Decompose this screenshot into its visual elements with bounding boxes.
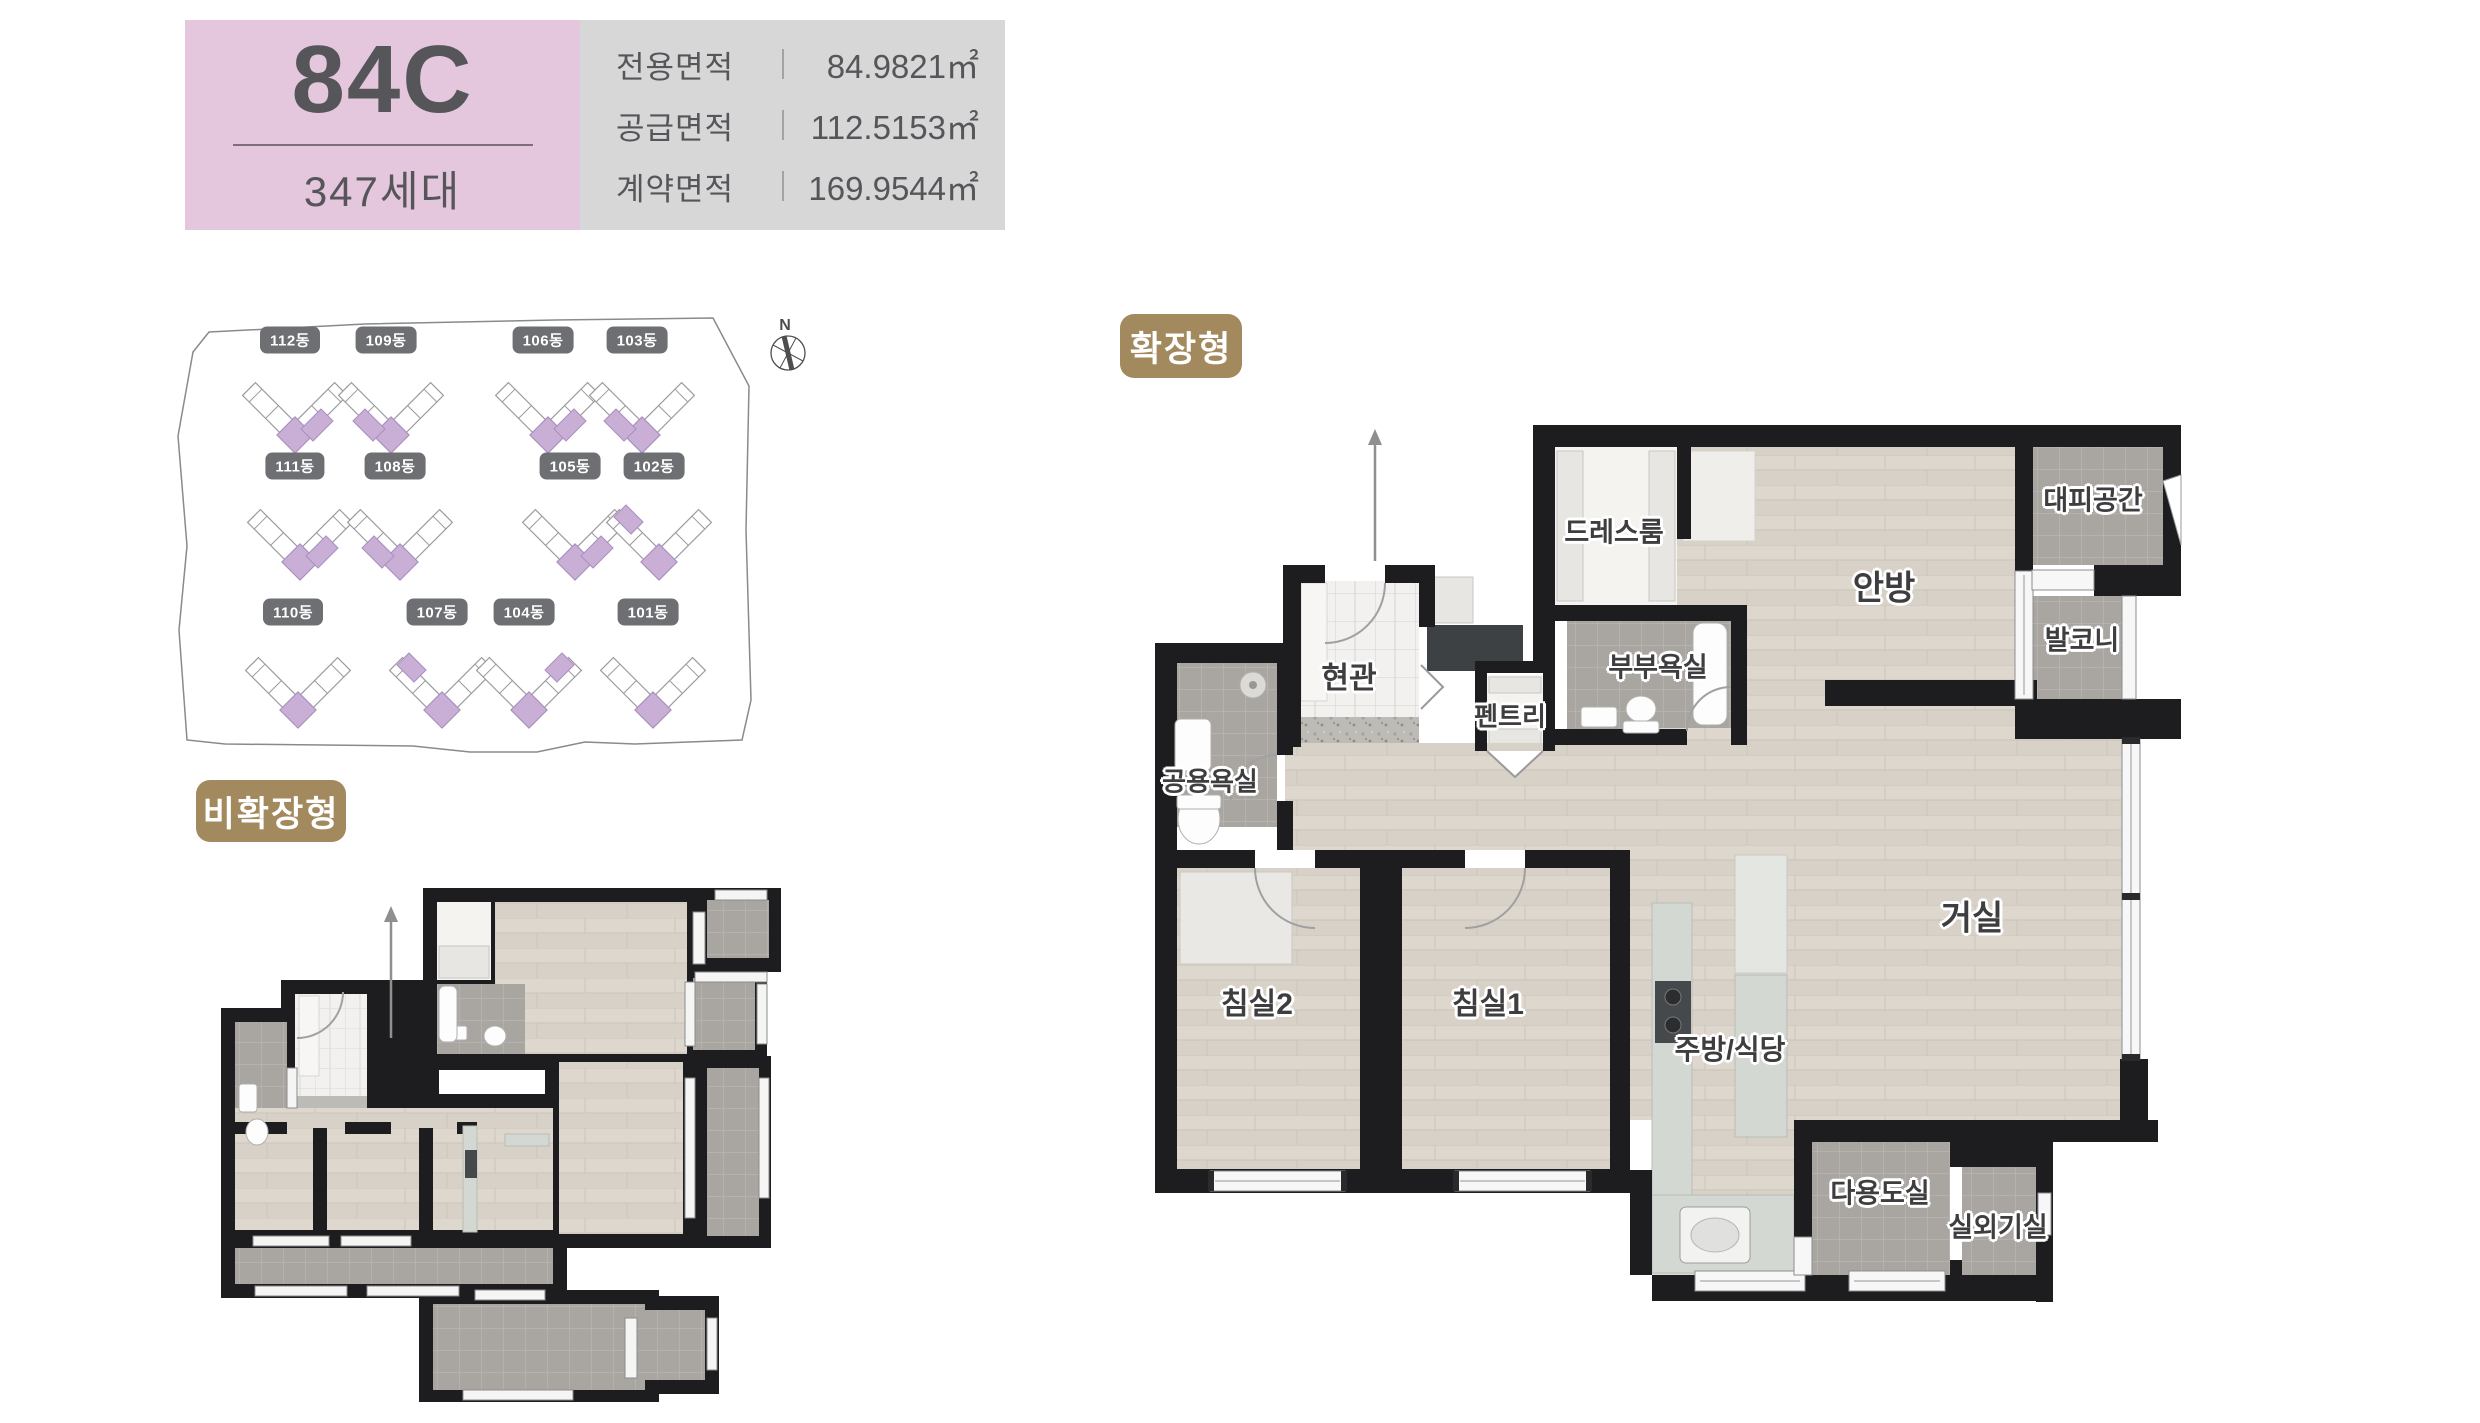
unit-type-badge: 84C 347세대 xyxy=(185,20,580,230)
room-label-refuge: 대피공간 xyxy=(2043,479,2142,518)
separator xyxy=(782,171,784,201)
unit-divider xyxy=(233,144,533,146)
page-canvas: 84C 347세대 전용면적 84.9821㎡ 공급면적 112.5153㎡ 계… xyxy=(0,0,2480,1423)
area-label: 전용면적 xyxy=(616,42,766,87)
compass-north-label: N xyxy=(779,317,791,334)
room-label-kitchen: 주방/식당 xyxy=(1675,1028,1786,1068)
building-badge: 110동 xyxy=(263,599,323,626)
room-label-living: 거실 xyxy=(1941,891,2004,940)
extended-type-tag: 확장형 xyxy=(1120,314,1242,378)
building-badge: 101동 xyxy=(618,599,679,626)
area-row-supply: 공급면적 112.5153㎡ xyxy=(616,101,979,149)
entry-closet-door-icon xyxy=(1421,665,1443,709)
non-extended-type-tag: 비확장형 xyxy=(196,780,346,842)
building-badge: 106동 xyxy=(513,327,574,354)
building-badge: 108동 xyxy=(365,453,426,480)
room-label-bedroom1: 침실1 xyxy=(1452,979,1524,1023)
room-label-bedroom2: 침실2 xyxy=(1221,979,1293,1023)
room-label-pantry: 펜트리 xyxy=(1474,697,1546,734)
building-badge: 105동 xyxy=(540,453,601,480)
floor-plan-extended: 드레스룸 대피공간 안방 발코니 현관 부부욕실 펜트리 공용욕실 침실2 침실… xyxy=(1135,425,2215,1345)
unit-household-count: 347세대 xyxy=(304,158,461,219)
building-badge: 107동 xyxy=(407,599,468,626)
floor-plan-non-extended-drawing xyxy=(195,888,805,1413)
building-badge: 109동 xyxy=(356,327,417,354)
building-badge: 104동 xyxy=(494,599,555,626)
area-info-box: 전용면적 84.9821㎡ 공급면적 112.5153㎡ 계약면적 169.95… xyxy=(580,20,1005,230)
unit-code: 84C xyxy=(291,32,473,128)
building-badge: 111동 xyxy=(265,453,324,480)
room-label-masterbath: 부부욕실 xyxy=(1608,646,1707,685)
sink-icon xyxy=(1581,707,1617,727)
area-label: 계약면적 xyxy=(616,164,766,209)
room-label-dressroom: 드레스룸 xyxy=(1564,511,1663,550)
area-row-contract: 계약면적 169.9544㎡ xyxy=(616,162,979,210)
room-label-entry: 현관 xyxy=(1321,653,1376,697)
room-label-acunit: 실외기실 xyxy=(1948,1206,2047,1245)
site-plan: N 112동 109동 106동 103동 111동 108동 105동 102… xyxy=(165,300,825,770)
area-row-exclusive: 전용면적 84.9821㎡ xyxy=(616,40,979,88)
toilet-icon xyxy=(1626,696,1656,722)
area-value: 169.9544㎡ xyxy=(800,162,979,210)
area-value: 112.5153㎡ xyxy=(800,101,979,149)
room-label-utility: 다용도실 xyxy=(1830,1172,1929,1211)
building-badge: 103동 xyxy=(607,327,668,354)
room-label-commonbath: 공용욕실 xyxy=(1162,762,1258,799)
building-badge: 102동 xyxy=(624,453,685,480)
site-plan-map: N xyxy=(165,300,825,770)
separator xyxy=(782,110,784,140)
building-badge: 112동 xyxy=(260,327,320,354)
floor-plan-extended-drawing xyxy=(1135,425,2215,1345)
room-label-master: 안방 xyxy=(1853,561,1916,610)
separator xyxy=(782,49,784,79)
room-label-balcony: 발코니 xyxy=(2045,619,2120,658)
entrance-arrow-icon xyxy=(1368,429,1382,561)
area-value: 84.9821㎡ xyxy=(800,40,979,88)
area-label: 공급면적 xyxy=(616,103,766,148)
compass-icon: N xyxy=(771,317,805,370)
floor-plan-non-extended xyxy=(195,888,805,1413)
